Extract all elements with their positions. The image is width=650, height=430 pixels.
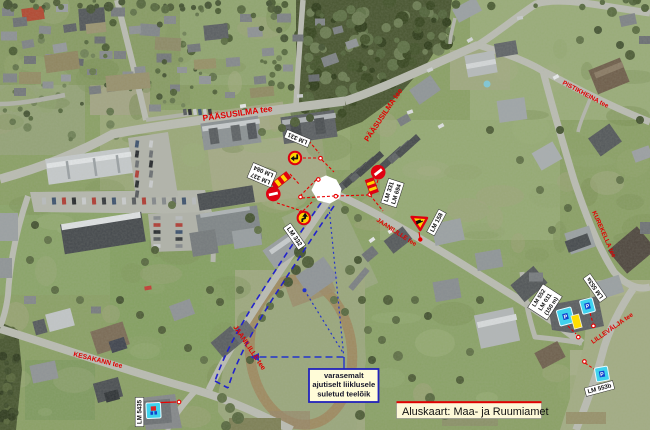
svg-text:varasemalt: varasemalt xyxy=(324,371,364,380)
svg-text:Aluskaart: Maa- ja Ruumiamet: Aluskaart: Maa- ja Ruumiamet xyxy=(402,406,548,418)
svg-text:suletud teelõik: suletud teelõik xyxy=(317,390,371,399)
svg-text:ajutiselt liiklusele: ajutiselt liiklusele xyxy=(312,380,375,389)
svg-text:LM 5435: LM 5435 xyxy=(136,399,143,424)
